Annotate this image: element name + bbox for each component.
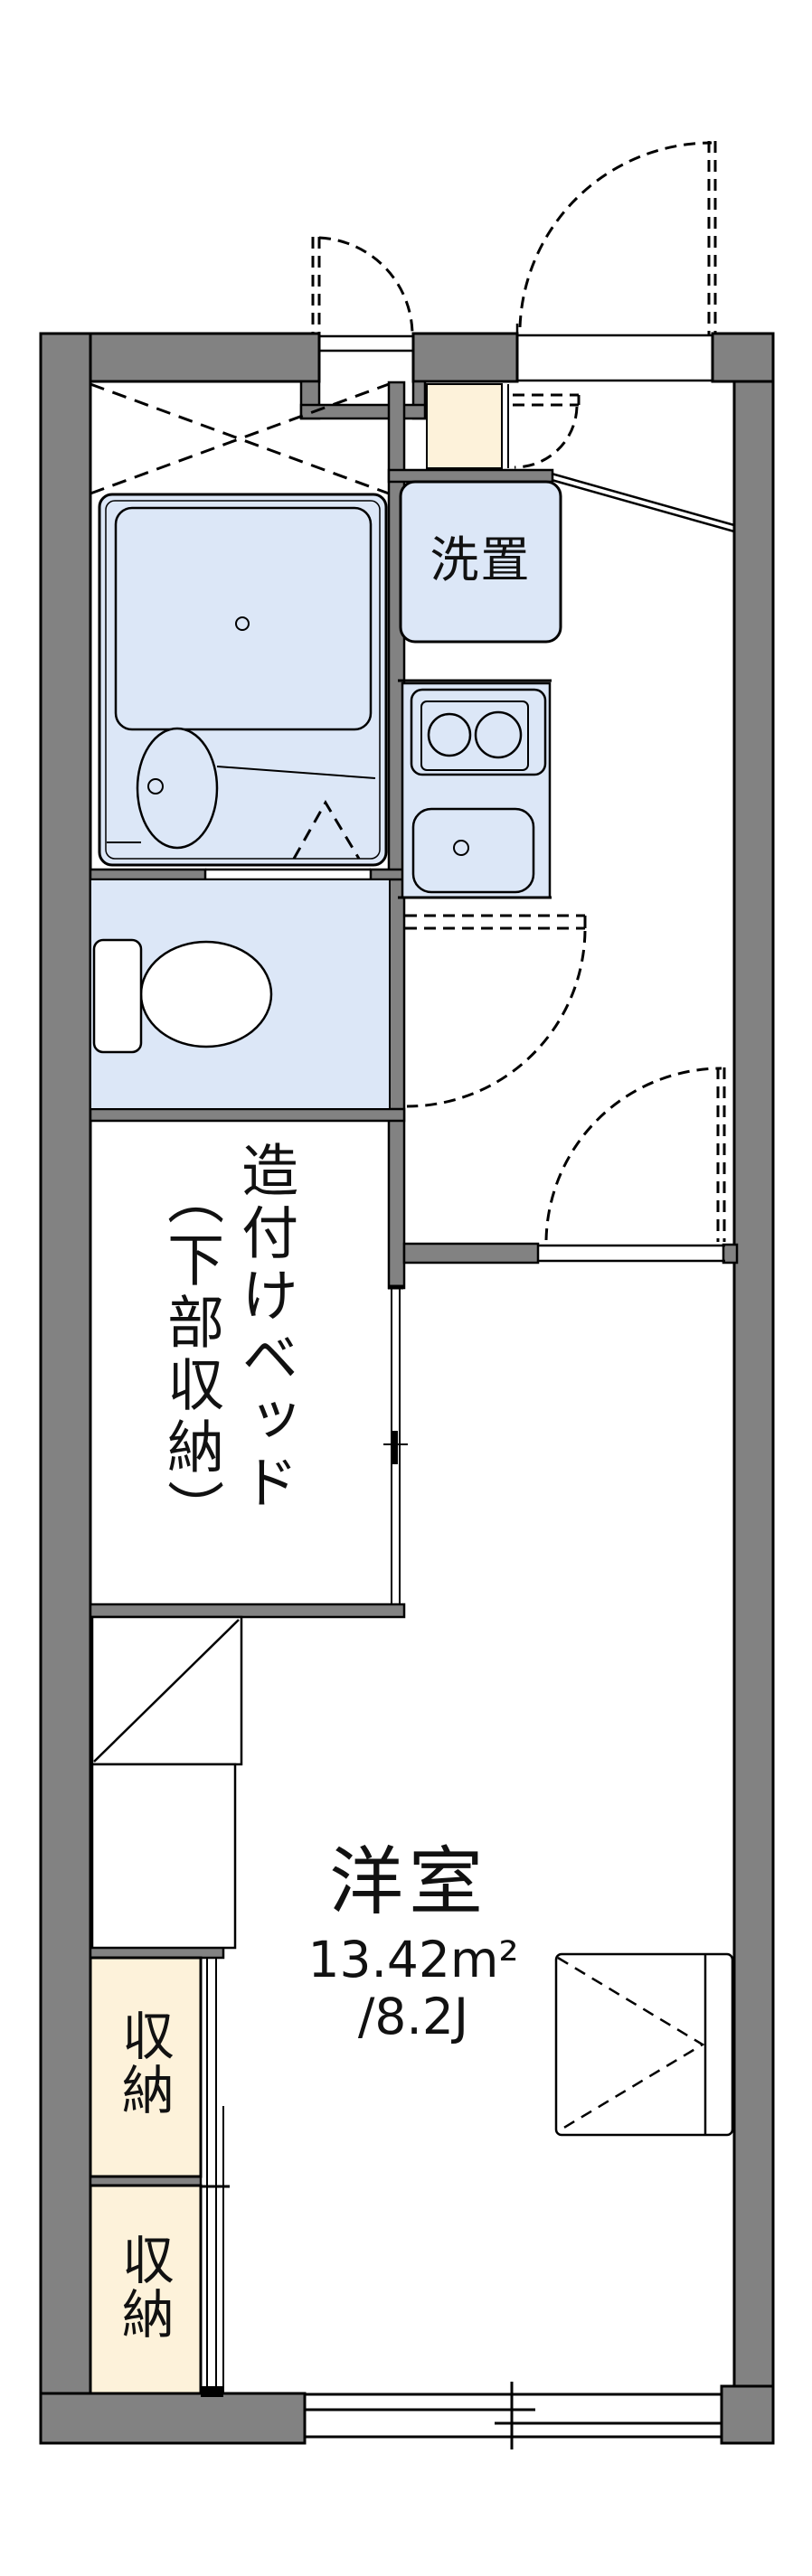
wall-bottom-right-corner: [722, 2386, 773, 2443]
door-western-room: [546, 1067, 724, 1242]
room-area-sqm-label: 13.42m²: [273, 1934, 553, 1987]
wall-right: [734, 381, 773, 2443]
storage-lower-label: 収納: [116, 2233, 171, 2341]
wall-toilet-bottom: [90, 1109, 404, 1121]
desk-counter: [556, 1954, 732, 2135]
floor-plan-drawing: [0, 0, 812, 2576]
floor-plan: 洗置 造付けベッド （下部収納） 洋室 13.42m² /8.2J 収納 収納: [0, 0, 812, 2576]
bathtub: [99, 494, 386, 865]
wall-top-mid: [413, 334, 517, 381]
room-area-tatami-label: /8.2J: [273, 1991, 553, 2044]
door-washroom: [513, 395, 579, 467]
window-south: [305, 2382, 722, 2449]
door-hall: [405, 916, 585, 1106]
bed-label-sub: （下部収納）: [161, 1168, 221, 1542]
wall-bed-bottom: [90, 1604, 404, 1617]
bed-label-main: 造付けベッド: [235, 1141, 295, 1515]
dressing-area-x-mark: [90, 384, 389, 494]
bed-step-area: [92, 1617, 241, 1948]
toilet-bowl: [141, 942, 271, 1047]
laundry-label: 洗置: [401, 535, 561, 587]
wall-bottom-left: [41, 2393, 305, 2443]
storage-door-track: [201, 1958, 230, 2397]
room-name-label: 洋室: [273, 1844, 544, 1922]
wall-bath-toilet-left: [90, 870, 205, 879]
wall-left: [41, 334, 90, 2443]
entry-step-edge: [552, 474, 734, 525]
wall-top-right-corner: [713, 334, 773, 381]
wall-genkan-stub: [389, 470, 552, 482]
kitchen-unit: [398, 681, 552, 898]
storage-upper-label: 収納: [116, 2008, 171, 2117]
genkan-cabinet: [427, 384, 502, 468]
toilet-tank: [94, 940, 141, 1052]
door-entrance: [520, 141, 715, 334]
wall-bath-toilet-right: [371, 870, 404, 879]
bed-room-sliding-door: [383, 1287, 408, 1604]
wall-room-top: [404, 1244, 538, 1263]
toilet-room: [90, 879, 390, 1109]
wall-alcove-bottom: [301, 405, 425, 418]
wall-room-top-right-stub: [723, 1245, 737, 1263]
door-upper-left: [313, 237, 412, 334]
